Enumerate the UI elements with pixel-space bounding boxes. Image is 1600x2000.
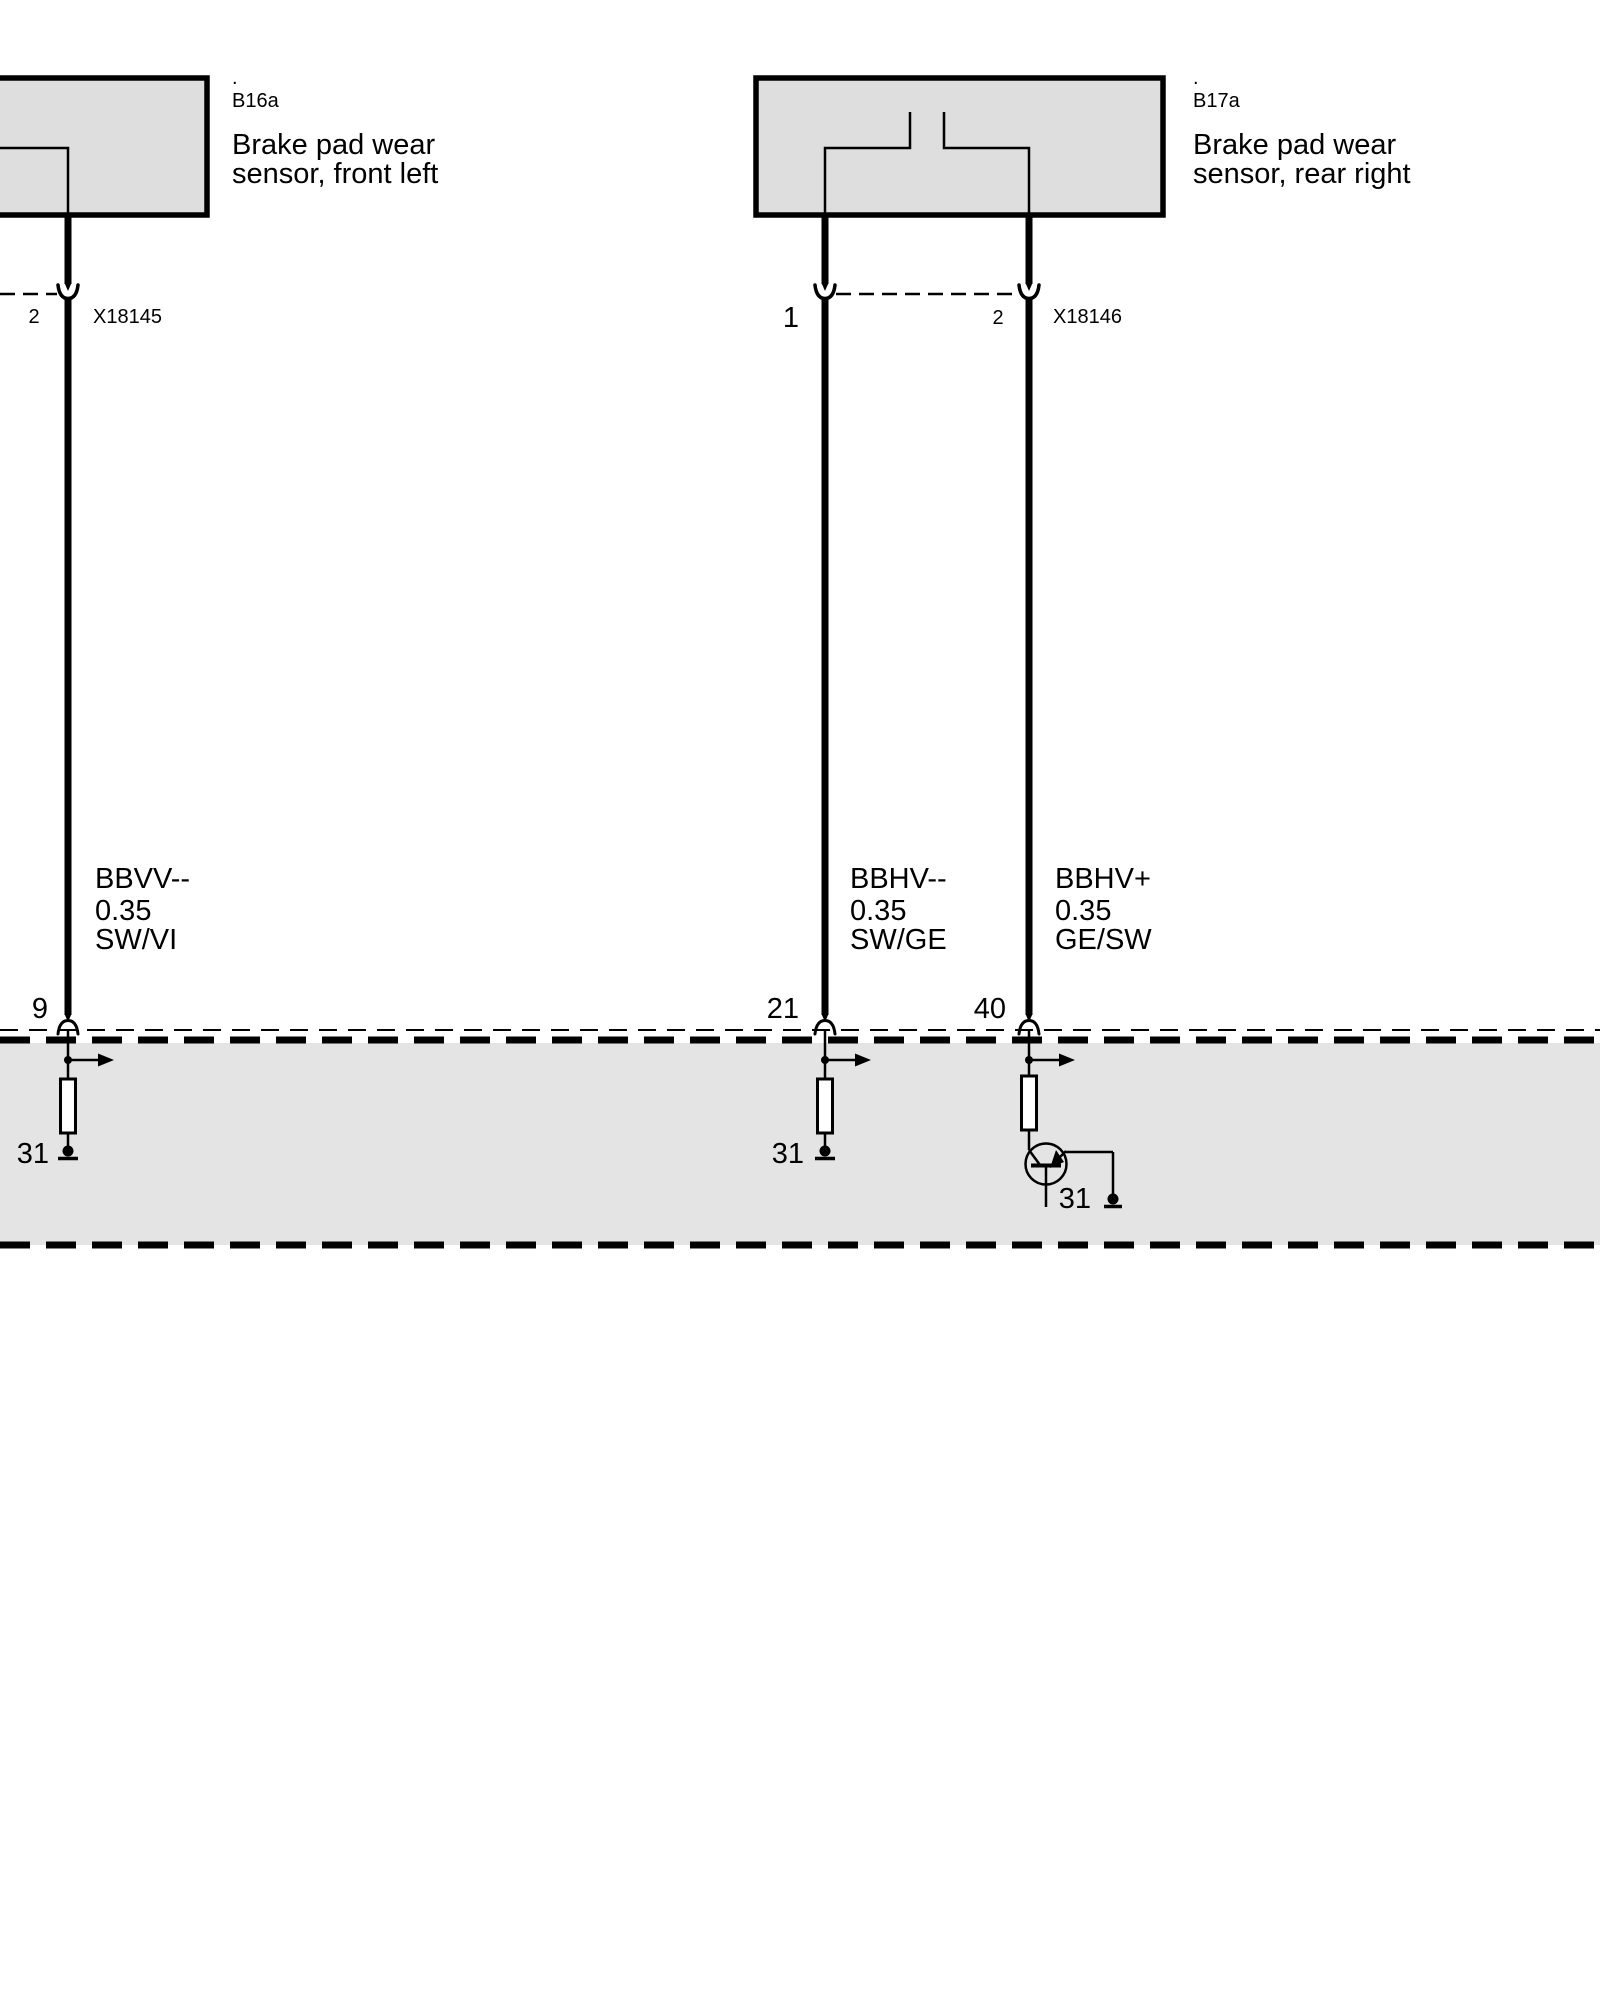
circuit-bbvv [58, 213, 114, 1159]
sensor-box-b16a [0, 78, 207, 215]
wire-gauge-label: 0.35 [95, 895, 151, 927]
connector-code-label: X18146 [1053, 306, 1122, 328]
component-dot-label: . [232, 67, 238, 89]
wiring-diagram-page: . B16a Brake pad wear sensor, front left… [0, 0, 1600, 2000]
pin-tip-icon [1026, 283, 1033, 291]
component-code-label: B17a [1193, 90, 1241, 112]
component-code-label: B16a [232, 90, 280, 112]
component-box [0, 78, 207, 215]
wire-name-label: BBHV-- [850, 863, 947, 895]
component-name-line1: Brake pad wear [232, 129, 435, 161]
component-name-line1: Brake pad wear [1193, 129, 1396, 161]
ground-dot-icon [63, 1146, 74, 1157]
connector-pin-label: 2 [992, 307, 1003, 329]
resistor-icon [1022, 1076, 1037, 1130]
wire-gauge-label: 0.35 [850, 895, 906, 927]
wire-name-label: BBHV+ [1055, 863, 1151, 895]
ground-dot-icon [820, 1146, 831, 1157]
resistor-icon [818, 1079, 833, 1133]
connector-pin-label: 1 [783, 302, 799, 334]
wire-color-label: SW/GE [850, 924, 947, 956]
module-pin-label: 21 [767, 993, 799, 1025]
wire-color-label: SW/VI [95, 924, 177, 956]
pin-tip-icon [65, 283, 72, 291]
wiring-diagram: . B16a Brake pad wear sensor, front left… [0, 0, 1600, 2000]
ground-ref-label: 31 [17, 1138, 49, 1170]
wire-name-label: BBVV-- [95, 863, 190, 895]
component-dot-label: . [1193, 67, 1199, 89]
connector-pin-label: 2 [28, 306, 39, 328]
component-name-line2: sensor, rear right [1193, 158, 1411, 190]
ground-dot-icon [1108, 1194, 1119, 1205]
wire-gauge-label: 0.35 [1055, 895, 1111, 927]
resistor-icon [61, 1079, 76, 1133]
pin-tip-icon [822, 283, 829, 291]
component-box [756, 78, 1163, 215]
circuit-bbhv-minus [815, 213, 871, 1159]
module-pin-label: 40 [974, 993, 1006, 1025]
connector-code-label: X18145 [93, 306, 162, 328]
ground-ref-label: 31 [772, 1138, 804, 1170]
ground-ref-label: 31 [1059, 1183, 1091, 1215]
wire-color-label: GE/SW [1055, 924, 1152, 956]
sensor-box-b17a [756, 78, 1163, 215]
module-pin-label: 9 [32, 993, 48, 1025]
component-name-line2: sensor, front left [232, 158, 438, 190]
